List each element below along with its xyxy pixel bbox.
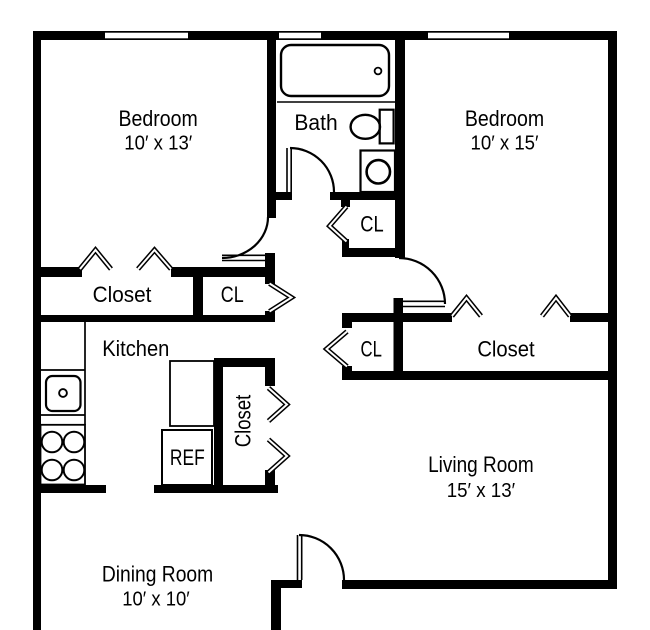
svg-text:Closet: Closet [232,394,256,447]
svg-text:Bedroom: Bedroom [465,107,544,131]
svg-text:Bedroom: Bedroom [118,107,197,131]
svg-text:CL: CL [221,284,244,308]
svg-text:Bath: Bath [294,111,337,136]
svg-text:10′ x 10′: 10′ x 10′ [122,588,190,611]
svg-text:CL: CL [360,213,383,237]
svg-text:CL: CL [361,337,382,362]
svg-text:Living Room: Living Room [428,453,534,478]
svg-text:10′ x 13′: 10′ x 13′ [124,132,192,155]
svg-text:10′ x 15′: 10′ x 15′ [470,132,538,155]
svg-text:REF: REF [170,446,205,470]
svg-text:Kitchen: Kitchen [102,337,169,361]
svg-text:Closet: Closet [93,283,152,308]
svg-text:Closet: Closet [477,338,534,362]
svg-text:Dining Room: Dining Room [102,562,213,586]
svg-text:15′ x 13′: 15′ x 13′ [447,479,516,502]
